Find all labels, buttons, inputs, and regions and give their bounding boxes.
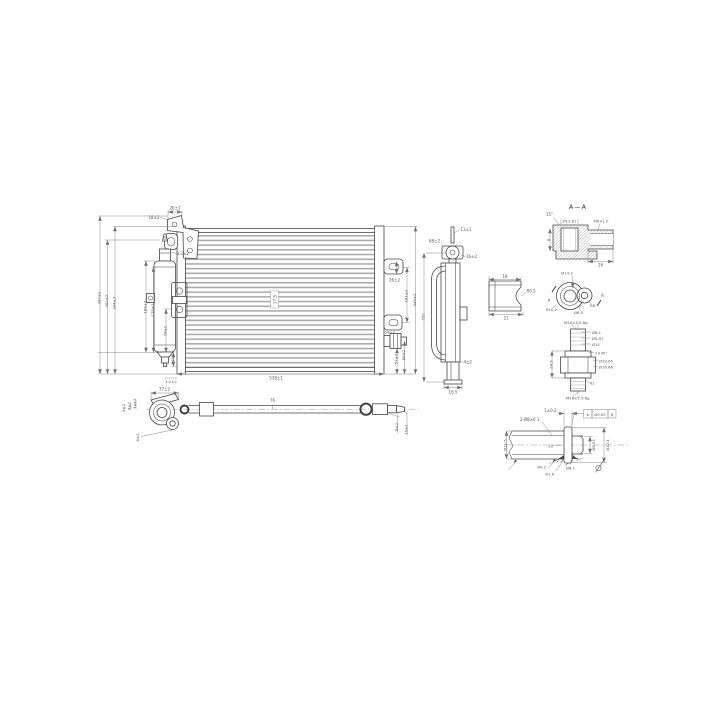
dim-cone-angle: 30° [576,457,583,462]
section-marker-right: A [601,293,604,298]
fitting-bottom-stub [571,378,586,391]
dim-overall-height: 397±2 [96,291,101,304]
dim-d3: Ø12 [592,342,600,347]
dim-flange-r-right: R8 [590,303,596,308]
pipe-tip [397,406,405,413]
dim-bead-width: 1±0.2 [544,408,557,413]
dim-side-bracket: 68±2 [429,239,440,244]
dim-r-bead: R1.6 [545,472,554,477]
dim-bracket-radius: R0.5 [527,289,537,294]
dim-pipe-flange-width: 37±2 [159,387,170,392]
dim-d-mid: Ø8.53 [591,439,596,451]
dim-drier-body: 175±2 [150,303,155,316]
dim-pipe-end1: 8±2 [394,422,399,431]
fin-pitch-callout: 17.5 [271,291,279,308]
dim-tube-note: 2-Ø8±0.1 [520,417,540,422]
drawing-canvas: 17.5 397±2 362±2 344±2 184±2 175±2 [0,0,720,720]
dim-d1: Ø8.1 [592,330,602,335]
dim-thread-bottom: M16×1.5-6g [566,396,590,401]
dim-pipe-l4: 6±2 [135,433,140,442]
section-aa-title: A—A [569,203,587,211]
valve-body [160,249,171,261]
dim-flange-hole: Ø6.5 [574,310,584,315]
core-top-plate [185,229,375,233]
drier-outlet [162,357,169,363]
side-body [441,263,460,362]
dim-fitting-offset: 54±2 [385,330,396,335]
side-tab [460,307,467,320]
dim-bracket-width: 18 [502,274,508,279]
dim-lower-left: 78±2 [162,325,167,336]
dim-bracket-offset: 18±2 [149,215,160,220]
dim-depth: 16.5 [449,390,458,395]
dim-chamfer-angle: 15° [546,212,553,217]
right-tank [375,226,385,374]
dim-right-height: 345±2 [412,293,417,306]
dim-valve-offset: 16±2 [466,254,477,259]
dim-tab-slot: 26±2 [389,278,400,283]
pipe-end-fitting [373,404,388,415]
core-bottom-plate [185,368,375,372]
dim-top-pin: 13±1 [461,227,472,232]
tolerance-datum: A [611,412,614,417]
tolerance-value: Ø0.05 [594,412,606,417]
dim-fitting-length: 24.5 [548,360,553,369]
dim-pipe-end2: 10±1 [403,424,408,435]
fitting-hex-body [561,357,596,373]
dim-lower-right: 88±2 [401,349,406,360]
dim-height-2: 362±2 [104,294,109,307]
dim-tab-pitch: 161±2 [403,289,408,302]
bracket-profile [489,281,521,311]
pipe-ferrule [200,403,214,417]
dim-width-16: 16 [598,263,604,268]
dim-pipe-l1: 14±2 [132,398,137,409]
dim-overall-width: 538±1 [269,376,283,381]
dim-fitting-drop: 52±2 [393,353,398,364]
drier-body [154,261,176,352]
dim-flange-bore: Ø14.3 [561,271,573,276]
section-marker-left: A [548,298,551,303]
dim-r-fillet: R0.2 [537,465,546,470]
dim-tube-id: Ø8.1 [566,466,576,471]
right-mount-tab-lower [384,315,402,330]
fitting-top-stub [571,329,586,351]
dim-tube-od: Ø11.5 [502,439,507,451]
dim-bore: Ø12.81 [563,219,577,224]
dim-pipe-length: 252 [420,313,425,321]
dim-d2: Ø5.97 [592,336,604,341]
dim-core-height: 344±2 [111,296,116,309]
dim-fitting-radius: R1 [590,381,596,386]
dim-flare-angle: 20° [548,444,555,449]
dim-valve-height: 8.2±2 [177,251,190,256]
side-foot [447,362,459,382]
dim-chamfer: 2×45° [595,350,607,355]
valve-port [446,246,459,259]
right-mount-tab-upper [384,259,403,274]
dim-thread: M6×1.0 [594,219,609,224]
dim-d4: Ø19.05 [599,358,613,363]
dim-d5: Ø16.66 [599,364,613,369]
dim-fin-pitch: 17.5 [273,295,278,304]
fin-core [185,232,375,367]
clamp-screw [173,297,187,304]
dim-bottom-offset: 3.2±2 [165,379,177,384]
dim-pipe-mid: 76 [270,398,276,403]
dim-thread-top: M20×1.5-6g [564,320,588,325]
dim-bracket-width: 20±1 [170,206,181,211]
dim-bead-od: Ø12.4 [605,439,610,451]
dim-bracket-base: 21 [503,316,509,321]
top-pin [451,227,454,243]
dim-flange-r-left: R10.2 [546,307,558,312]
dim-drier-height: 184±2 [142,300,147,313]
dim-pipe-l2: 8±2 [127,401,132,410]
dim-drier-outlet: 14±2 [170,354,175,365]
bead [564,427,572,463]
dim-foot-gap: 4±2 [464,360,473,365]
dim-pipe-l3: 4±2 [121,403,126,412]
